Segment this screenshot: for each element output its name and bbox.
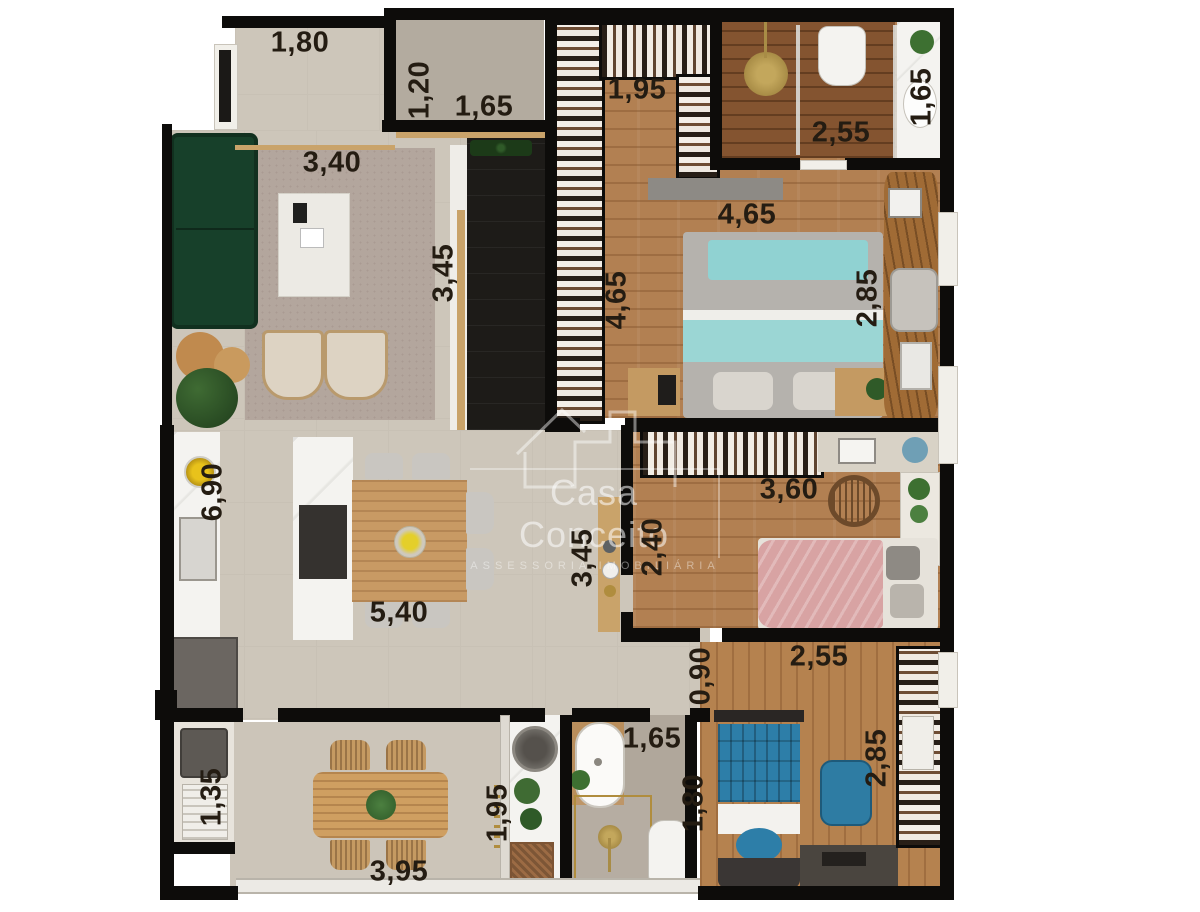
dimension-label-hall-depth: 3,45: [567, 529, 600, 587]
dimension-label-terrace-width: 3,95: [370, 856, 428, 889]
master-desk-frame: [888, 188, 922, 218]
bed-throw-teal: [708, 240, 868, 280]
laundry-plant: [514, 778, 540, 804]
living-plant: [176, 368, 238, 428]
dimension-label-closet: 1,95: [608, 74, 666, 107]
hall-console-decor: [604, 585, 616, 597]
dimension-label-bedroom3-depth: 2,85: [861, 729, 894, 787]
wall: [545, 8, 954, 22]
master-toilet: [818, 26, 866, 86]
bedroom2-bed: [758, 538, 938, 630]
dimension-label-bathroom-width: 1,65: [623, 723, 681, 756]
dimension-label-master-desk-wall: 2,85: [852, 269, 885, 327]
bedroom3-closet-drawers: [902, 716, 934, 770]
cooktop: [299, 505, 347, 579]
balcony-deck: [467, 138, 545, 430]
wall: [160, 425, 174, 710]
bed-pillow: [713, 372, 773, 410]
threshold: [396, 132, 545, 138]
terrace-chair: [330, 840, 370, 870]
bed3-foot-blanket: [718, 858, 800, 888]
dimension-label-dining-width: 5,40: [370, 597, 428, 630]
wall: [160, 712, 174, 900]
bed3-pillow-round: [736, 828, 782, 862]
watermark-house-icon: [515, 392, 685, 492]
dimension-label-laundry: 1,95: [482, 784, 515, 842]
entry-door: [219, 50, 231, 122]
dining-chair: [365, 453, 403, 479]
dimension-label-powder-room-depth: 1,20: [404, 61, 437, 119]
wall: [396, 8, 552, 20]
floor-plan: Casa Conceito ASSESSORIA IMOBILIÁRIA 1,8…: [0, 0, 1200, 912]
terrace-chair: [330, 740, 370, 770]
master-desk-laptop: [900, 342, 932, 390]
bedroom2-shelf-plant: [910, 505, 928, 523]
dimension-label-powder-room-width: 1,65: [455, 91, 513, 124]
dining-chair: [466, 548, 494, 590]
dimension-label-master-depth: 4,65: [601, 271, 634, 329]
dimension-label-living-depth: 3,45: [428, 244, 461, 302]
armchair-left: [262, 330, 324, 400]
wall: [162, 124, 172, 430]
wall: [160, 886, 238, 900]
bed3-headboard: [714, 710, 804, 722]
shower-door-sill: [800, 160, 847, 170]
dimension-label-master-vanity: 1,65: [906, 68, 939, 126]
hall-console-decor: [602, 562, 619, 579]
wall: [633, 628, 700, 642]
bathroom-plant: [570, 770, 590, 790]
dimension-label-kitchen-depth: 6,90: [197, 463, 230, 521]
dining-chair: [412, 453, 450, 479]
armchair-right: [324, 330, 388, 400]
dimension-label-bathroom-depth: 1,80: [678, 774, 711, 832]
bed2-pillow: [890, 584, 924, 618]
wall: [545, 8, 557, 432]
bedroom2-chair: [902, 437, 928, 463]
window: [938, 366, 958, 464]
sofa-cushion-line: [176, 228, 254, 230]
wall: [572, 708, 650, 722]
bedroom3-bed: [714, 710, 804, 888]
laundry-washbasin: [512, 726, 558, 772]
wall: [845, 158, 954, 170]
window: [938, 212, 958, 286]
coffee-table-book: [300, 228, 324, 248]
master-dresser: [648, 178, 783, 200]
bedroom2-laptop: [838, 438, 876, 464]
dining-chair: [466, 492, 494, 534]
dimension-label-terrace-utility: 1,35: [196, 768, 229, 826]
sofa: [170, 133, 258, 329]
hall-console-decor: [603, 540, 616, 553]
master-desk-chair: [890, 268, 938, 332]
wall: [710, 20, 722, 170]
dimension-label-bedroom2-depth: 2,40: [637, 518, 670, 576]
wall: [384, 8, 396, 132]
dimension-label-living-width: 3,40: [303, 147, 361, 180]
dimension-label-bedroom2-width: 3,60: [760, 474, 818, 507]
terrace-railing: [236, 878, 700, 894]
wall: [160, 708, 243, 722]
wall: [621, 612, 633, 642]
dimension-label-master-shower-width: 2,55: [812, 117, 870, 150]
bed2-pillow: [886, 546, 920, 580]
window: [938, 652, 958, 708]
shower-gold-column: [608, 838, 611, 872]
fridge: [172, 637, 238, 714]
coffee-table-decor: [293, 203, 307, 223]
balcony-plants: [470, 140, 532, 156]
bathtub-drain: [594, 758, 602, 766]
wall: [710, 158, 800, 170]
shower-arm: [764, 22, 767, 58]
vanity-plant: [910, 30, 934, 54]
shower-head: [744, 52, 788, 96]
bed3-blue-tufted: [718, 724, 800, 802]
dimension-label-master-width: 4,65: [718, 199, 776, 232]
laundry-plant: [520, 808, 542, 830]
dimension-label-bedroom3-width: 2,55: [790, 641, 848, 674]
dining-centerpiece: [394, 526, 426, 558]
dimension-label-corridor: 0,90: [685, 647, 718, 705]
bed2-pink-blanket: [758, 540, 883, 628]
vanity-glass: [893, 25, 897, 158]
dimension-label-entry-hall: 1,80: [271, 27, 329, 60]
closet-rack-left: [551, 22, 605, 424]
bedroom2-shelf-plant: [908, 478, 930, 500]
wall: [167, 842, 235, 854]
terrace-chair: [386, 740, 426, 770]
wall: [698, 886, 954, 900]
shower-glass-partition: [796, 25, 800, 155]
bedroom3-keyboard: [822, 852, 866, 866]
bedroom2-pendant: [828, 475, 880, 527]
kitchen-sink: [179, 517, 217, 581]
wall: [560, 715, 572, 880]
closet-rack-top: [599, 22, 721, 80]
terrace-table-plant: [366, 790, 396, 820]
